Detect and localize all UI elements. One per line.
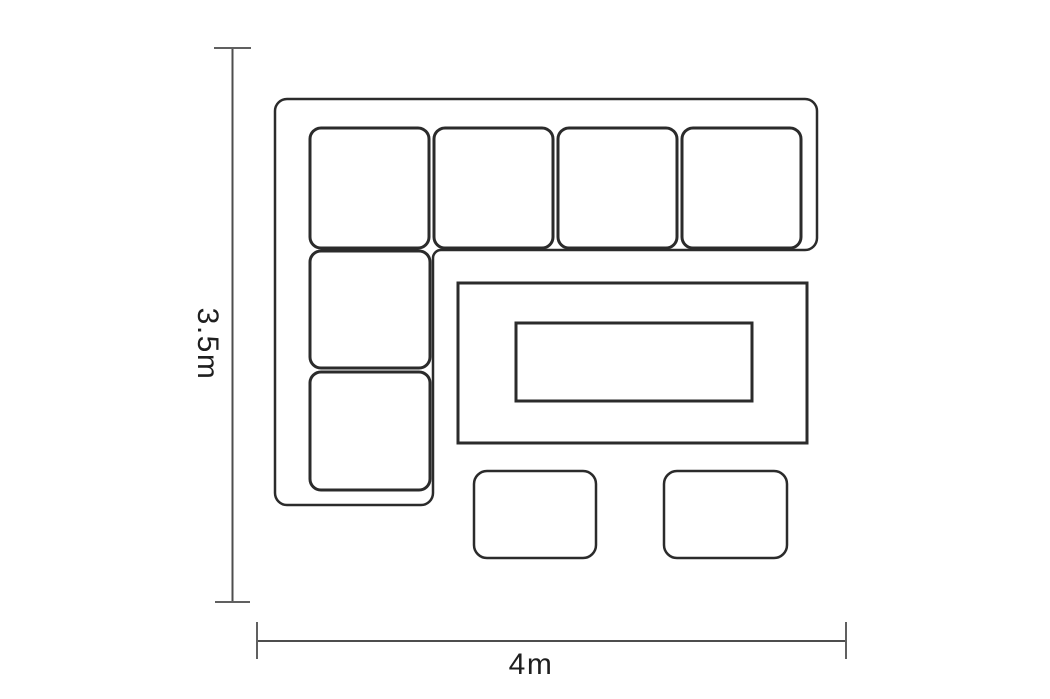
sofa-cushion-6 [310, 372, 430, 490]
height-dimension-label: 3.5m [192, 308, 222, 381]
sofa-cushion-2 [434, 128, 553, 248]
floorplan-drawing [0, 0, 1050, 699]
sofa-cushion-4 [682, 128, 801, 248]
sofa-cushion-1 [310, 128, 429, 248]
width-dimension-label: 4m [509, 650, 554, 680]
floorplan-canvas: 3.5m 4m [0, 0, 1050, 699]
coffee-table-inner [516, 323, 752, 401]
stool-right [664, 471, 787, 558]
sofa-cushion-3 [558, 128, 677, 248]
stool-left [474, 471, 596, 558]
sofa-cushion-5 [310, 251, 430, 368]
